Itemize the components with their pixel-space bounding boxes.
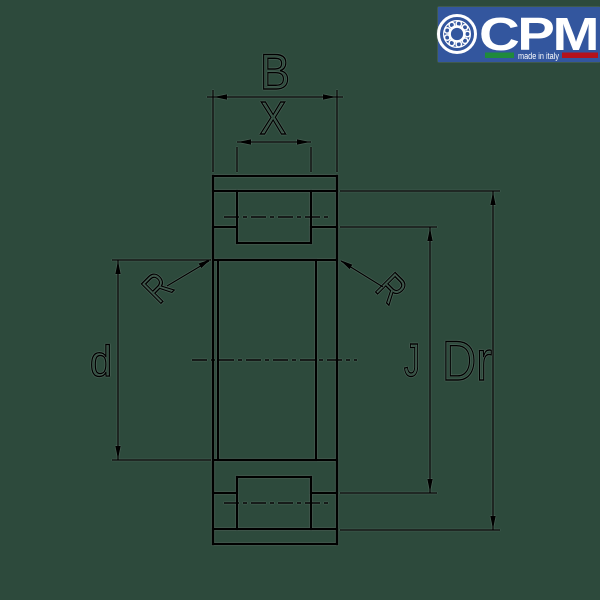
arrow-left-icon bbox=[214, 94, 227, 99]
arrow-up-icon bbox=[115, 261, 120, 274]
arrow-down-icon bbox=[427, 479, 432, 492]
arrow-right-icon bbox=[297, 139, 310, 144]
arrow-down-icon bbox=[115, 446, 120, 459]
dim-label-R-left: R bbox=[134, 264, 181, 311]
cpm-logo: CPM made in italy bbox=[438, 7, 600, 62]
dim-label-R-right: R bbox=[367, 265, 414, 312]
dimension-X: X bbox=[237, 92, 311, 172]
dim-label-X: X bbox=[260, 92, 287, 144]
italy-flag-green-bar bbox=[485, 53, 514, 59]
arrow-up-icon bbox=[427, 228, 432, 241]
cage-band-top bbox=[213, 176, 337, 191]
italy-flag-red-bar bbox=[562, 53, 598, 59]
arrow-left-icon bbox=[238, 139, 251, 144]
arrow-down-icon bbox=[490, 516, 495, 529]
chamfer-leader-left: R bbox=[134, 259, 211, 312]
inner-ring-section-bottom bbox=[213, 460, 337, 493]
dim-label-Dr: Dr bbox=[442, 329, 492, 392]
arrow-right-icon bbox=[323, 94, 336, 99]
arrow-up-icon bbox=[490, 192, 495, 205]
inner-ring-section-top bbox=[213, 227, 337, 260]
logo-tagline-text: made in italy bbox=[518, 51, 559, 61]
leader-arrow-icon bbox=[340, 260, 352, 269]
dimension-Dr: Dr bbox=[340, 191, 500, 530]
dim-label-J: J bbox=[404, 334, 420, 386]
cage-band-bottom bbox=[213, 529, 337, 544]
chamfer-leader-right: R bbox=[340, 260, 415, 313]
bearing-cross-section-drawing: B X d J Dr R bbox=[0, 0, 600, 600]
dim-label-d: d bbox=[90, 337, 112, 386]
